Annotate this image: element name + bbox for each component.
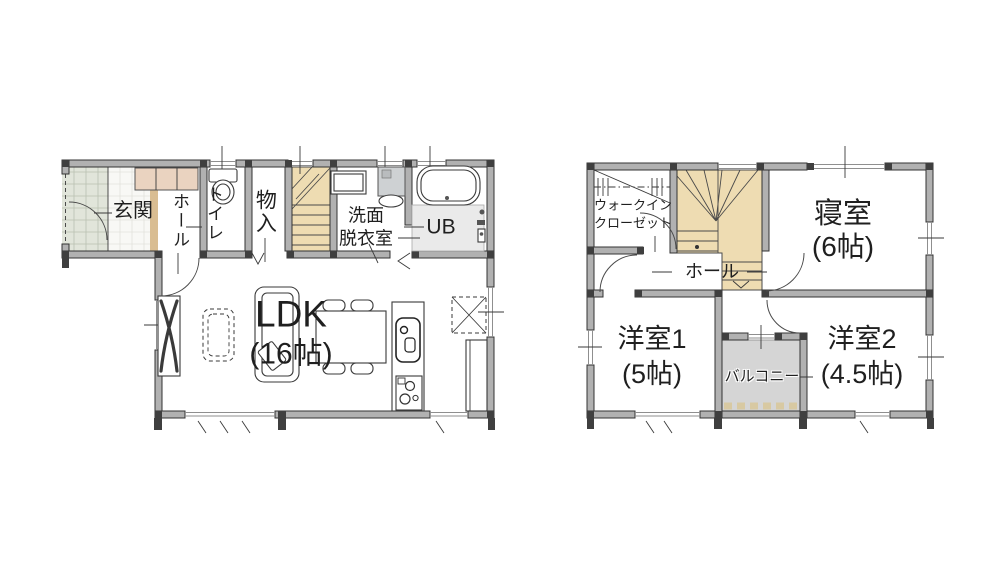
chair — [351, 300, 373, 311]
floorplan-drawing — [0, 0, 1000, 580]
label-hall-1f: ホール — [169, 193, 189, 250]
room1-door-arc — [600, 255, 637, 292]
label-ub: UB — [426, 216, 455, 241]
label-genkan: 玄関 — [113, 200, 153, 224]
pantry-cupboard — [466, 340, 487, 411]
vanity-fixture — [331, 171, 366, 194]
label-hall-2f: ホール — [685, 261, 739, 282]
rug — [203, 309, 234, 361]
hall-door-arc — [161, 258, 199, 296]
storage-folding-door-mark — [252, 253, 264, 264]
stove-fixture — [396, 376, 422, 410]
label-walkin-closet: ウォークイン クローゼット — [594, 196, 672, 231]
label-bedroom: 寝室 (6帖) — [812, 198, 874, 264]
washing-machine-fixture — [378, 167, 405, 207]
label-toilet: トイレ — [203, 186, 223, 243]
shoe-cabinet — [135, 168, 198, 190]
label-storage: 物入 — [252, 189, 277, 235]
room2-door-arc — [767, 300, 800, 333]
label-ldk: LDK (16帖) — [249, 292, 332, 371]
staircase-first-floor — [290, 166, 330, 251]
floorplan-canvas: 玄関 ホール トイレ 物入 洗面 脱衣室 UB LDK (16帖) ウォークイン… — [0, 0, 1000, 580]
refrigerator-space — [452, 297, 486, 333]
bedroom-door-arc — [766, 253, 804, 291]
label-balcony: バルコニー — [725, 368, 800, 386]
label-room2: 洋室2 (4.5帖) — [821, 322, 904, 392]
sink-fixture — [396, 318, 420, 362]
label-room1: 洋室1 (5帖) — [617, 322, 686, 392]
chair — [351, 363, 373, 374]
label-washroom: 洗面 脱衣室 — [339, 205, 393, 250]
floor1-plan — [62, 146, 504, 433]
washroom-folding-door-mark — [398, 253, 410, 269]
tv-board — [158, 296, 180, 376]
